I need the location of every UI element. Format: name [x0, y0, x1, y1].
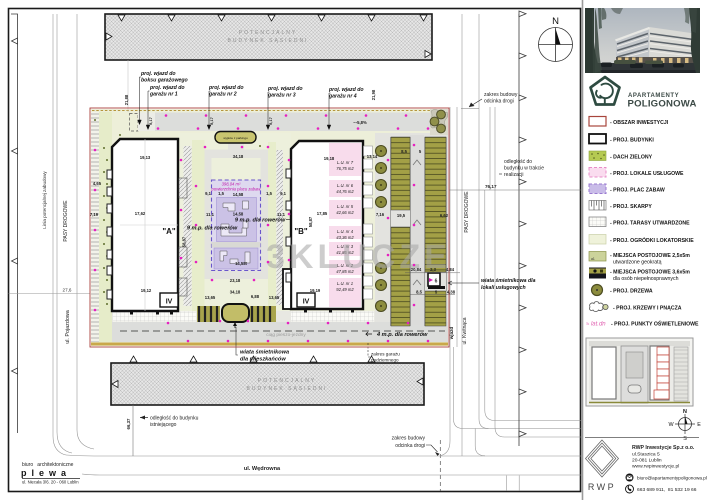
svg-text:ul. Wędrowna: ul. Wędrowna: [244, 466, 281, 472]
svg-text:biuro@apartamentypoligonowa.pl: biuro@apartamentypoligonowa.pl: [637, 476, 707, 481]
svg-text:13,65: 13,65: [269, 295, 280, 300]
svg-text:BUDYNEK SĄSIEDNI: BUDYNEK SĄSIEDNI: [247, 386, 328, 392]
svg-text:- PROJ. OGRÓDKI LOKATORSKIE: - PROJ. OGRÓDKI LOKATORSKIE: [610, 236, 694, 244]
svg-text:E: E: [697, 422, 701, 428]
svg-text:garażu nr 2: garażu nr 2: [208, 92, 237, 98]
svg-text:odległość do: odległość do: [504, 159, 532, 165]
svg-text:a1: a1: [591, 257, 595, 261]
svg-text:13,65: 13,65: [205, 295, 216, 300]
svg-text:IV: IV: [303, 299, 310, 306]
svg-text:21,98: 21,98: [371, 89, 376, 100]
svg-text:76,17: 76,17: [485, 184, 497, 189]
svg-text:- DACH ZIELONY: - DACH ZIELONY: [610, 155, 653, 161]
svg-text:44,76 m2: 44,76 m2: [336, 189, 354, 194]
svg-text:wyjście z parkingu: wyjście z parkingu: [223, 136, 248, 140]
svg-text:odległość do budynku: odległość do budynku: [150, 416, 199, 422]
svg-text:8,17: 8,17: [269, 117, 273, 124]
svg-text:19,18: 19,18: [324, 156, 335, 161]
svg-text:- PROJ. PUNKTY OŚWIETLENIOWE: - PROJ. PUNKTY OŚWIETLENIOWE: [611, 321, 699, 328]
svg-text:ciąg pieszo-jezdny: ciąg pieszo-jezdny: [266, 332, 306, 338]
svg-text:POTENCJALNY: POTENCJALNY: [258, 378, 316, 384]
svg-text:wjazd: wjazd: [449, 327, 454, 341]
svg-text:wiata śmietnikowa: wiata śmietnikowa: [240, 350, 289, 356]
svg-text:L.U. nr 4: L.U. nr 4: [337, 229, 354, 234]
svg-text:17,85: 17,85: [317, 211, 328, 216]
svg-text:- PROJ. TARASY UTWARDZONE: - PROJ. TARASY UTWARDZONE: [610, 221, 690, 227]
svg-text:20,84: 20,84: [411, 267, 422, 272]
svg-text:www.rwpinwestycje.pl: www.rwpinwestycje.pl: [632, 464, 679, 470]
svg-text:58,87: 58,87: [182, 236, 187, 247]
svg-text:wiata śmietnikowa dla: wiata śmietnikowa dla: [481, 278, 536, 284]
svg-text:- PROJ. DRZEWA: - PROJ. DRZEWA: [610, 289, 653, 295]
svg-text:8,17: 8,17: [149, 117, 153, 124]
svg-text:76,75 m2: 76,75 m2: [336, 166, 354, 171]
svg-text:19,12: 19,12: [141, 288, 152, 293]
svg-text:8,5: 8,5: [401, 149, 407, 154]
svg-text:dla mieszkańców: dla mieszkańców: [240, 357, 286, 363]
svg-text:9 m.p. dla rowerów: 9 m.p. dla rowerów: [235, 218, 286, 224]
svg-text:42,66 m2: 42,66 m2: [336, 210, 354, 215]
svg-text:17,62: 17,62: [135, 211, 146, 216]
svg-text:4,65: 4,65: [93, 181, 102, 186]
svg-text:2,3: 2,3: [430, 267, 436, 272]
svg-text:garażu nr 4: garażu nr 4: [328, 94, 357, 100]
svg-text:L.U. nr 6: L.U. nr 6: [337, 183, 354, 188]
svg-text:- PROJ. LOKALE USŁUGOWE: - PROJ. LOKALE USŁUGOWE: [610, 171, 684, 177]
svg-text:34,18: 34,18: [233, 154, 244, 159]
svg-text:proj. wjazd do: proj. wjazd do: [208, 85, 244, 91]
svg-text:11,1: 11,1: [206, 212, 215, 217]
svg-text:23,18: 23,18: [230, 278, 241, 283]
svg-text:66,37: 66,37: [126, 418, 131, 430]
svg-text:podziemnego: podziemnego: [371, 358, 399, 363]
svg-text:9,1: 9,1: [280, 191, 286, 196]
svg-text:Linia potencjalnej zabudowy: Linia potencjalnej zabudowy: [42, 171, 47, 229]
svg-text:plewa: plewa: [21, 468, 71, 478]
svg-text:odcinka drogi: odcinka drogi: [484, 99, 514, 105]
svg-text:proj. wjazd do: proj. wjazd do: [267, 86, 303, 92]
svg-text:20-081 Lublin: 20-081 Lublin: [632, 458, 662, 464]
svg-text:- PROJ. PLAC ZABAW: - PROJ. PLAC ZABAW: [610, 188, 665, 194]
svg-text:92,49 m2: 92,49 m2: [336, 287, 354, 292]
svg-text:zakres budowy: zakres budowy: [484, 92, 518, 98]
svg-text:9 m.p. dla rowerów: 9 m.p. dla rowerów: [187, 226, 238, 232]
svg-text:ul. Niecała 3/6. 20 - 060 Lubl: ul. Niecała 3/6. 20 - 060 Lublin: [22, 480, 79, 485]
svg-text:13,14: 13,14: [367, 154, 378, 159]
svg-text:663 689 911, 81 532 19 66: 663 689 911, 81 532 19 66: [637, 487, 697, 493]
svg-text:zakres budowy: zakres budowy: [392, 436, 426, 442]
svg-text:27,6: 27,6: [63, 288, 72, 293]
svg-text:RWP: RWP: [588, 482, 616, 492]
svg-text:BUDYNEK SĄSIEDNI: BUDYNEK SĄSIEDNI: [228, 38, 309, 44]
svg-text:6,62: 6,62: [440, 213, 449, 218]
svg-text:19,13: 19,13: [140, 155, 151, 160]
svg-text:6,88: 6,88: [251, 294, 260, 299]
svg-text:IV: IV: [166, 299, 173, 306]
svg-text:utwardzone geokratą: utwardzone geokratą: [613, 260, 662, 266]
svg-text:proj. wjazd do: proj. wjazd do: [149, 85, 185, 91]
svg-text:dla osób niepełnosprawnych: dla osób niepełnosprawnych: [613, 276, 679, 282]
svg-text:- MIEJSCA POSTOJOWE 3,6x5m: - MIEJSCA POSTOJOWE 3,6x5m: [610, 270, 690, 276]
svg-text:14,58: 14,58: [233, 212, 244, 217]
svg-text:L.U. nr 1: L.U. nr 1: [337, 281, 353, 286]
svg-text:3KLUCZE: 3KLUCZE: [266, 238, 451, 276]
svg-text:proj. wjazd do: proj. wjazd do: [328, 87, 364, 93]
svg-text:- OBSZAR INWESTYCJI: - OBSZAR INWESTYCJI: [610, 120, 669, 126]
svg-text:POLIGONOWA: POLIGONOWA: [628, 99, 697, 110]
svg-text:garażu nr 1: garażu nr 1: [149, 92, 178, 98]
svg-text:7,16: 7,16: [376, 212, 385, 217]
svg-text:21,88: 21,88: [124, 94, 129, 105]
svg-text:7,19: 7,19: [90, 212, 99, 217]
svg-text:14,58t: 14,58t: [235, 261, 247, 266]
svg-text:"B": "B": [294, 227, 308, 236]
svg-text:- PROJ. BUDYNKI: - PROJ. BUDYNKI: [610, 138, 654, 144]
svg-text:PASY DROGOWE: PASY DROGOWE: [464, 191, 470, 233]
svg-text:14,58: 14,58: [233, 192, 244, 197]
svg-text:11,1: 11,1: [277, 212, 286, 217]
svg-text:~-5,8%: ~-5,8%: [353, 120, 367, 125]
svg-text:- PROJ. KRZEWY I PNĄCZA: - PROJ. KRZEWY I PNĄCZA: [613, 306, 682, 312]
svg-text:ul. Pojazdowa: ul. Pojazdowa: [65, 310, 71, 344]
svg-text:L.U. nr 7: L.U. nr 7: [337, 160, 354, 165]
svg-text:odcinka drogi: odcinka drogi: [395, 443, 425, 449]
svg-text:4,38: 4,38: [447, 290, 456, 295]
svg-text:6: 6: [435, 279, 438, 285]
svg-text:S: S: [683, 436, 687, 442]
svg-text:proj. wjazd do: proj. wjazd do: [140, 71, 176, 77]
svg-text:zakres garażu: zakres garażu: [371, 352, 400, 357]
svg-text:garażu nr 3: garażu nr 3: [267, 93, 296, 99]
svg-text:34,18: 34,18: [230, 290, 241, 295]
svg-text:8,5: 8,5: [416, 290, 422, 295]
svg-text:ul. Kwitnąca: ul. Kwitnąca: [462, 317, 468, 344]
svg-text:19,19: 19,19: [310, 288, 321, 293]
svg-text:budynku w trakcie: budynku w trakcie: [504, 166, 544, 172]
svg-text:4,84: 4,84: [446, 267, 455, 272]
svg-text:realizacji: realizacji: [504, 172, 523, 178]
svg-text:RWP Inwestycje Sp.z o.o.: RWP Inwestycje Sp.z o.o.: [632, 445, 695, 451]
svg-text:ul.Staszica 5: ul.Staszica 5: [632, 452, 660, 458]
svg-text:1,5: 1,5: [218, 191, 224, 196]
svg-text:N: N: [552, 16, 559, 27]
svg-text:- PROJ. SKARPY: - PROJ. SKARPY: [610, 204, 652, 210]
svg-text:4 m.p. dla rowerów: 4 m.p. dla rowerów: [376, 332, 428, 338]
svg-text:58,87: 58,87: [308, 216, 313, 227]
svg-text:POTENCJALNY: POTENCJALNY: [239, 30, 297, 36]
svg-text:9,1: 9,1: [205, 191, 211, 196]
svg-text:boksu garażowego: boksu garażowego: [141, 78, 188, 84]
svg-text:- MIEJSCA POSTOJOWE 2,5x5m: - MIEJSCA POSTOJOWE 2,5x5m: [610, 253, 690, 259]
svg-text:8,17: 8,17: [210, 117, 214, 124]
svg-text:"A": "A": [162, 227, 176, 236]
svg-text:1,5: 1,5: [266, 191, 272, 196]
svg-text:lokali usługowych: lokali usługowych: [481, 285, 526, 291]
svg-text:PASY DROGOWE: PASY DROGOWE: [63, 200, 69, 242]
svg-text:≈ lat.dn: ≈ lat.dn: [586, 322, 606, 328]
svg-text:istniejącego: istniejącego: [150, 422, 177, 428]
svg-text:19,5: 19,5: [397, 213, 406, 218]
svg-text:L.U. nr 5: L.U. nr 5: [337, 204, 354, 209]
